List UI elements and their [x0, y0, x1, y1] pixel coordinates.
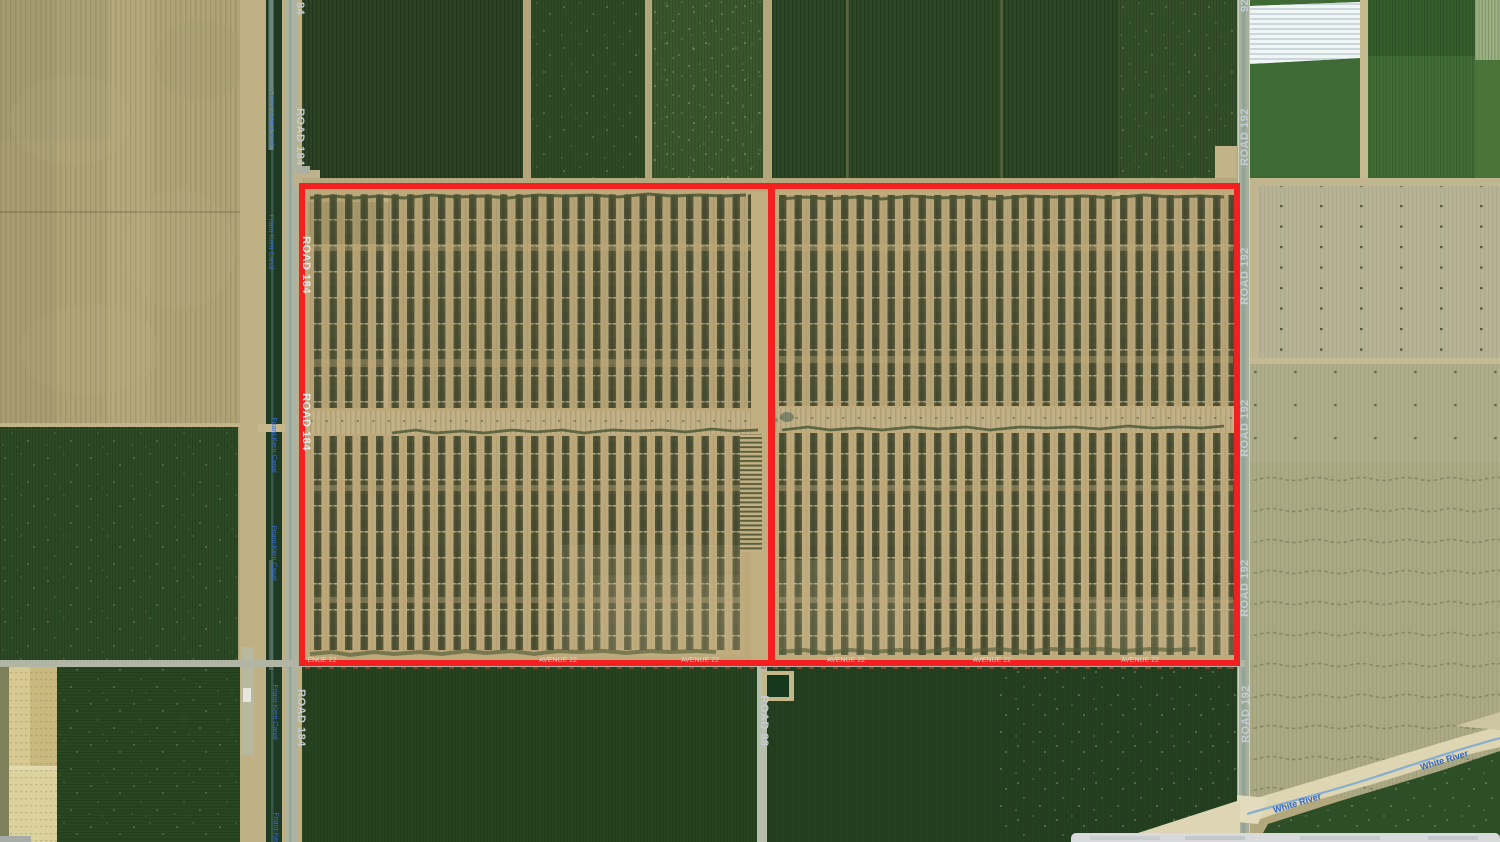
svg-text:ROAD 88: ROAD 88	[758, 695, 770, 746]
svg-text:ROAD 184: ROAD 184	[295, 689, 307, 747]
svg-text:AVENUE 22: AVENUE 22	[973, 657, 1011, 664]
svg-text:ROAD 192: ROAD 192	[1239, 399, 1251, 457]
svg-text:ROAD 184: ROAD 184	[300, 236, 312, 294]
svg-text:Friant-Kern Canal: Friant-Kern Canal	[267, 90, 274, 146]
svg-text:AVENUE 22: AVENUE 22	[539, 657, 577, 664]
svg-text:ROAD 192: ROAD 192	[1240, 685, 1252, 743]
svg-text:ENUE 22: ENUE 22	[307, 657, 336, 664]
svg-text:AVENUE 22: AVENUE 22	[1121, 657, 1159, 664]
svg-text:92: 92	[1239, 0, 1251, 12]
svg-text:ROAD 184: ROAD 184	[300, 393, 312, 451]
svg-text:ROAD 192: ROAD 192	[1239, 559, 1251, 617]
svg-text:Friant-Kern Canal: Friant-Kern Canal	[270, 525, 277, 581]
svg-text:ROAD 184: ROAD 184	[294, 108, 306, 166]
svg-text:Friant-Kern Canal: Friant-Kern Canal	[270, 417, 277, 473]
svg-text:Friant-Kern Canal: Friant-Kern Canal	[271, 684, 278, 740]
svg-text:Friant-Kern Canal: Friant-Kern Canal	[267, 214, 274, 270]
svg-text:AVENUE 22: AVENUE 22	[827, 657, 865, 664]
svg-text:84: 84	[294, 2, 306, 16]
svg-text:ROAD 192: ROAD 192	[1239, 247, 1251, 305]
svg-text:Friant-Kern: Friant-Kern	[272, 812, 279, 842]
svg-text:AVENUE 22: AVENUE 22	[681, 657, 719, 664]
svg-text:ROAD 192: ROAD 192	[1239, 108, 1251, 166]
